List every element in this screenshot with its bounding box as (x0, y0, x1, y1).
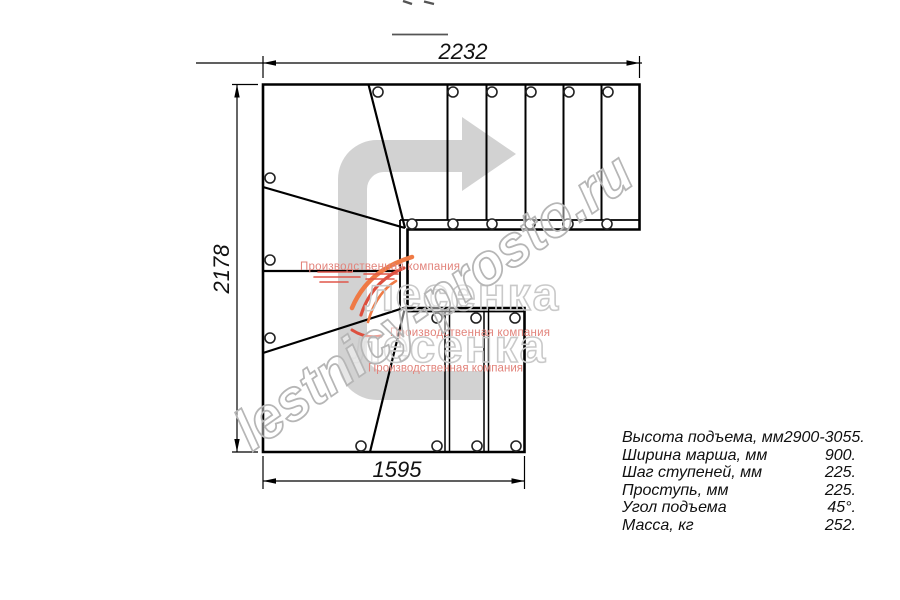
staircase-plan-page: 2232 2178 1595 лесенка лесенка Производс… (0, 0, 900, 600)
spec-value: 2900-3055. (784, 429, 865, 447)
dimension-top (196, 56, 642, 78)
dimension-bottom-label: 1595 (373, 457, 423, 482)
spec-row: Ширина марша, мм 900. (622, 447, 856, 465)
spec-value: 252. (825, 517, 856, 535)
spec-row: Высота подъема, мм 2900-3055. (622, 429, 856, 447)
spec-value: 225. (825, 464, 856, 482)
spec-label: Высота подъема, мм (622, 429, 784, 447)
spec-label: Проступь, мм (622, 482, 728, 500)
spec-table: Высота подъема, мм 2900-3055. Ширина мар… (622, 429, 856, 534)
cropped-dimension-remnant (392, 1, 448, 35)
spec-value: 900. (825, 447, 856, 465)
site-url-watermark: lestnicy-prosto.ru (222, 140, 644, 463)
spec-label: Масса, кг (622, 517, 694, 535)
spec-row: Проступь, мм 225. (622, 482, 856, 500)
dimension-left-label: 2178 (209, 244, 234, 295)
spec-value: 45°. (827, 499, 856, 517)
spec-label: Шаг ступеней, мм (622, 464, 762, 482)
spec-row: Угол подъема 45°. (622, 499, 856, 517)
dimension-top-label: 2232 (438, 39, 488, 64)
spec-value: 225. (825, 482, 856, 500)
spec-row: Шаг ступеней, мм 225. (622, 464, 856, 482)
spec-label: Угол подъема (622, 499, 727, 517)
spec-label: Ширина марша, мм (622, 447, 767, 465)
spec-row: Масса, кг 252. (622, 517, 856, 535)
